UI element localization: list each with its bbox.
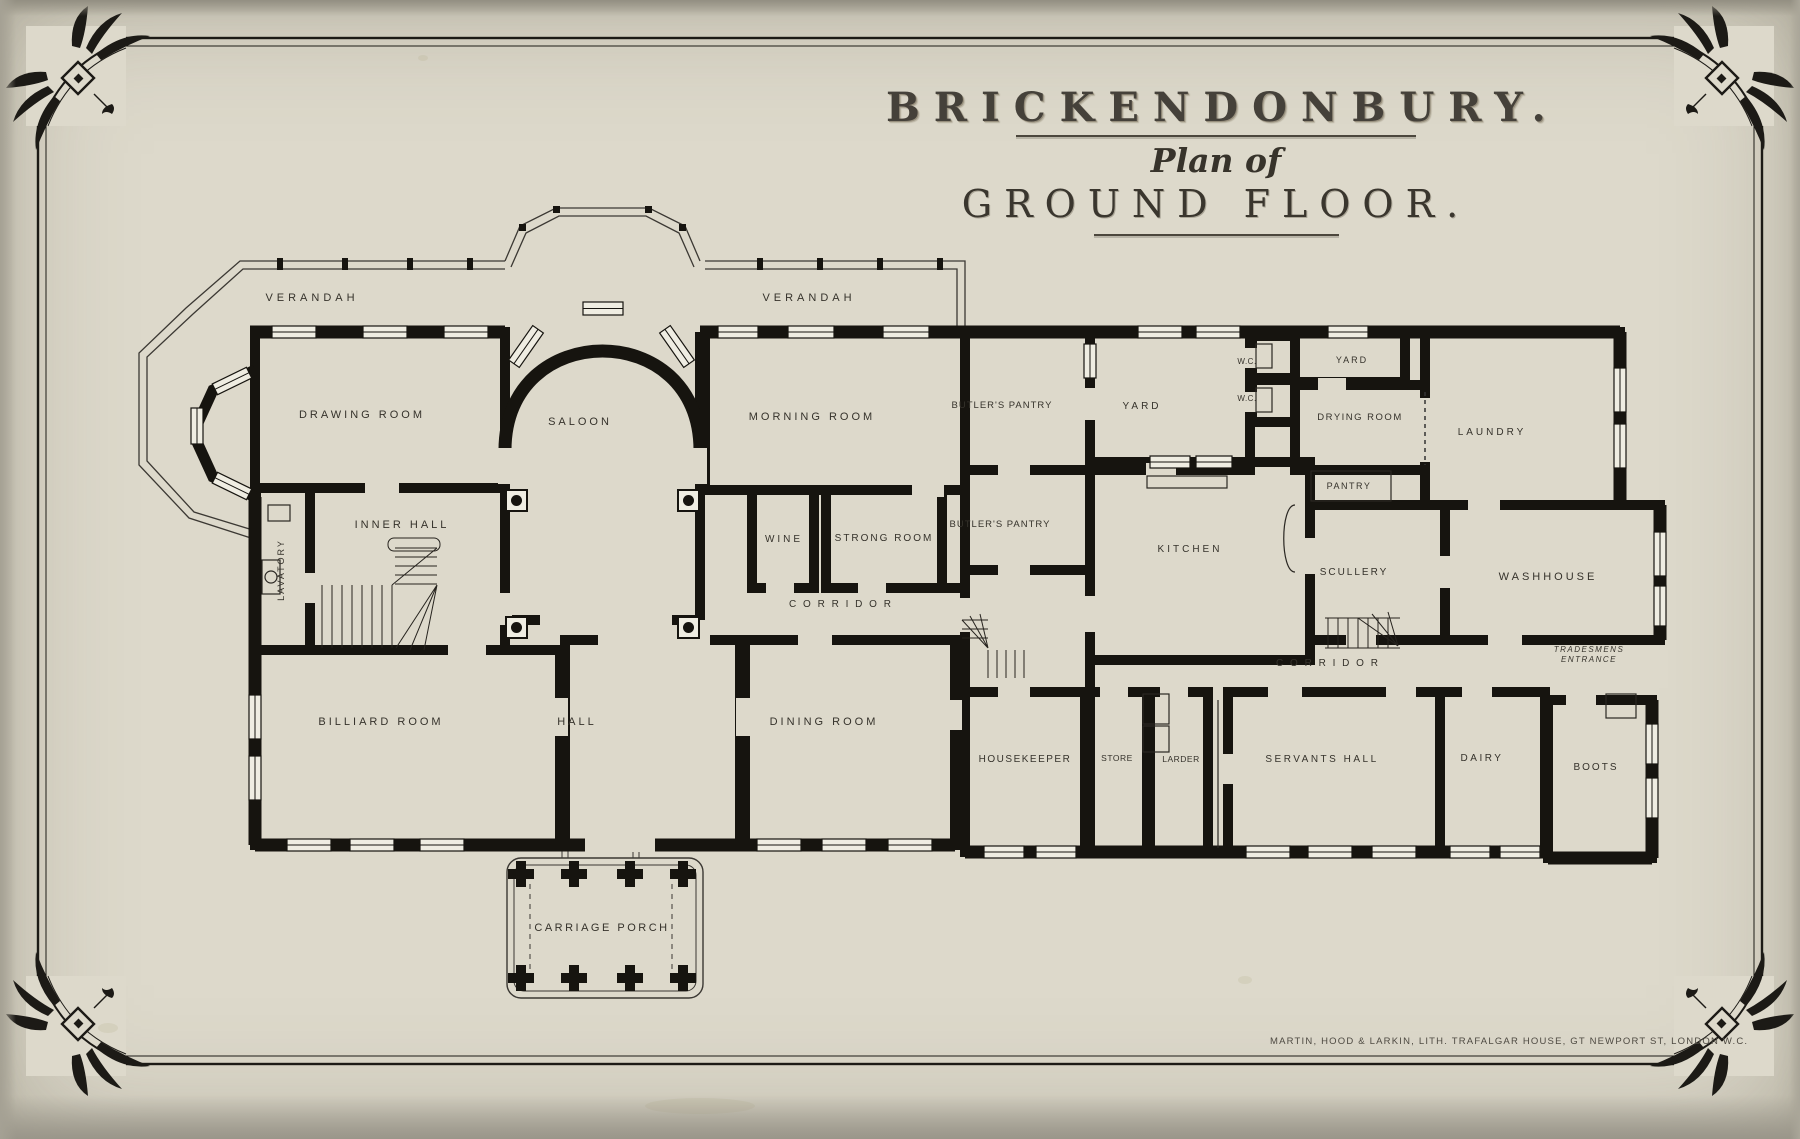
room-label-dairy: DAIRY (1461, 753, 1504, 764)
window-icon (583, 302, 623, 315)
window-icon (1036, 846, 1076, 858)
door-opening (948, 700, 962, 730)
window-icon (1196, 456, 1232, 468)
room-label-dining-room: DINING ROOM (770, 716, 879, 728)
plan-sheet: VERANDAHVERANDAHDRAWING ROOMSALOONMORNIN… (0, 0, 1800, 1139)
window-icon (888, 839, 932, 851)
window-icon (1654, 532, 1666, 576)
window-icon (1614, 368, 1626, 412)
door-opening (1083, 388, 1097, 420)
window-icon (788, 326, 834, 338)
window-icon (363, 326, 407, 338)
room-label-larder: LARDER (1162, 754, 1199, 764)
door-opening (998, 685, 1030, 699)
window-icon (1196, 326, 1240, 338)
room-label-carriage-porch: CARRIAGE PORCH (534, 922, 669, 934)
room-label-yard: YARD (1122, 401, 1161, 412)
door-opening (1418, 398, 1432, 462)
window-icon (509, 326, 544, 368)
door-opening (498, 448, 512, 484)
room-label-verandah-west: VERANDAH (265, 292, 358, 304)
room-label-butlers-pantry-south: BUTLER'S PANTRY (950, 519, 1051, 530)
window-icon (1308, 846, 1352, 858)
window-icon (350, 839, 394, 851)
door-opening (1221, 754, 1235, 784)
room-label-corridor-west: C O R R I D O R (789, 599, 893, 610)
door-opening (448, 643, 486, 657)
window-icon (1138, 326, 1182, 338)
door-opening (998, 563, 1030, 577)
corner-fleuron-icon (6, 6, 150, 150)
window-icon (212, 367, 251, 394)
room-label-billiard-room: BILLIARD ROOM (318, 716, 443, 728)
door-opening (1100, 685, 1128, 699)
window-icon (1654, 586, 1666, 626)
door-opening (858, 581, 886, 595)
window-icon (1646, 724, 1658, 764)
room-label-boots: BOOTS (1573, 762, 1618, 773)
door-opening (1083, 596, 1097, 632)
room-label-scullery: SCULLERY (1320, 567, 1389, 578)
window-icon (660, 326, 695, 368)
window-icon (249, 695, 261, 739)
estate-name: BRICKENDONBURY. (886, 84, 1546, 131)
door-opening (1488, 633, 1522, 647)
room-label-butlers-pantry-north: BUTLER'S PANTRY (952, 400, 1053, 411)
corner-fleuron-icon (1650, 6, 1794, 150)
door-opening (1346, 633, 1376, 647)
window-icon (984, 846, 1024, 858)
door-opening (1146, 633, 1180, 647)
door-opening (540, 613, 672, 627)
window-icon (444, 326, 488, 338)
door-opening (998, 463, 1030, 477)
window-icon (757, 839, 801, 851)
window-icon (272, 326, 316, 338)
window-icon (1084, 344, 1096, 378)
window-icon (1450, 846, 1490, 858)
grand-staircase (322, 538, 440, 650)
door-opening (303, 573, 317, 603)
door-opening (1654, 650, 1668, 688)
window-icon (1614, 424, 1626, 468)
floor-name: GROUND FLOOR. (886, 182, 1546, 226)
door-opening (798, 633, 832, 647)
window-icon (883, 326, 929, 338)
room-label-lavatory: LAVATORY (276, 539, 286, 601)
room-label-store: STORE (1101, 753, 1133, 763)
room-label-verandah-east: VERANDAH (762, 292, 855, 304)
room-label-laundry: LAUNDRY (1458, 427, 1527, 438)
door-opening (365, 481, 399, 495)
window-icon (1646, 778, 1658, 818)
door-opening (736, 698, 754, 736)
room-label-hall: HALL (557, 716, 597, 728)
room-label-servants-hall: SERVANTS HALL (1265, 754, 1378, 765)
window-icon (249, 756, 261, 800)
room-label-housekeeper: HOUSEKEEPER (979, 754, 1072, 765)
room-label-wc-north: W.C. (1237, 357, 1256, 366)
door-opening (585, 838, 655, 852)
door-opening (693, 448, 707, 484)
room-label-drawing-room: DRAWING ROOM (299, 409, 425, 421)
door-opening (958, 598, 972, 632)
door-opening (1386, 685, 1416, 699)
room-label-wc-south: W.C. (1237, 394, 1256, 403)
window-icon (718, 326, 758, 338)
door-opening (1462, 685, 1492, 699)
title-block: BRICKENDONBURY. Plan of GROUND FLOOR. (886, 84, 1546, 238)
window-icon (287, 839, 331, 851)
window-icon (1500, 846, 1540, 858)
door-opening (1438, 556, 1452, 588)
room-label-saloon: SALOON (548, 416, 612, 428)
room-label-yard-small: YARD (1336, 355, 1368, 365)
room-label-inner-hall: INNER HALL (355, 519, 450, 531)
window-icon (212, 472, 251, 499)
room-label-corridor-east: C O R R I D O R (1276, 658, 1380, 669)
lithographer-imprint: MARTIN, HOOD & LARKIN, LITH. TRAFALGAR H… (1270, 1036, 1630, 1047)
door-opening (1303, 538, 1317, 574)
room-label-pantry: PANTRY (1327, 481, 1372, 491)
door-opening (1160, 685, 1188, 699)
room-label-wine: WINE (765, 534, 803, 545)
title-rule (1094, 234, 1339, 236)
corner-fleuron-icon (6, 952, 150, 1096)
window-icon (1246, 846, 1290, 858)
window-icon (420, 839, 464, 851)
room-label-tradesmens-entrance: TRADESMENSENTRANCE (1554, 645, 1625, 664)
door-opening (1256, 633, 1286, 647)
door-opening (1268, 685, 1302, 699)
room-label-washhouse: WASHHOUSE (1499, 571, 1598, 583)
room-label-morning-room: MORNING ROOM (749, 411, 875, 423)
door-opening (1318, 378, 1346, 392)
door-opening (1566, 693, 1596, 707)
door-opening (1468, 498, 1500, 512)
window-icon (1328, 326, 1368, 338)
title-rule (1016, 135, 1416, 137)
window-icon (191, 408, 203, 444)
plan-of-subtitle: Plan of (886, 141, 1546, 180)
room-label-strong-room: STRONG ROOM (835, 533, 934, 544)
room-label-kitchen: KITCHEN (1158, 544, 1223, 555)
window-icon (1372, 846, 1416, 858)
window-icon (1150, 456, 1190, 468)
room-label-drying-room: DRYING ROOM (1317, 412, 1402, 423)
door-opening (766, 581, 794, 595)
corner-fleuron-icon (1650, 952, 1794, 1096)
window-icon (822, 839, 866, 851)
door-opening (912, 483, 944, 497)
